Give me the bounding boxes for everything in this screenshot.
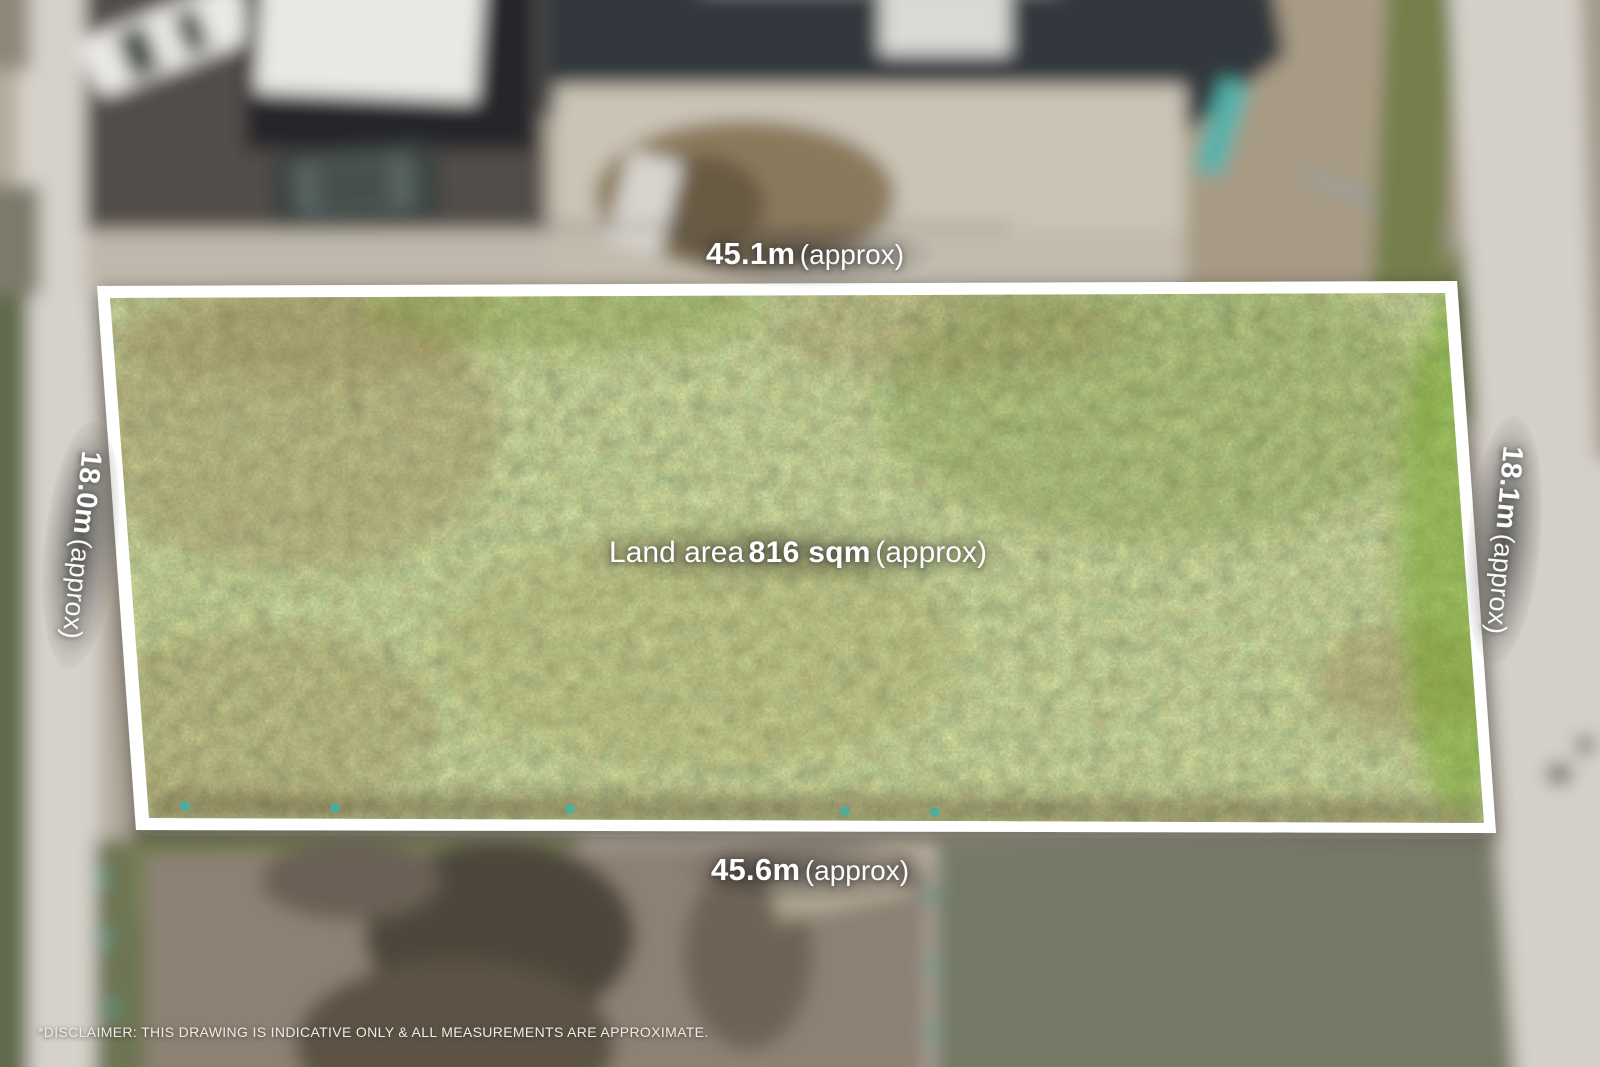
land-area-approx: (approx) xyxy=(875,536,987,569)
dirt-blob-4 xyxy=(260,840,440,920)
survey-mark-3 xyxy=(924,1028,936,1035)
right-boundary-measurement: 18.1m (approx) xyxy=(1479,445,1528,636)
top-measurement-value: 45.1m xyxy=(706,236,795,271)
bottom-boundary-measurement: 45.6m (approx) xyxy=(711,852,909,888)
road-debris xyxy=(1576,736,1594,754)
right-measurement-approx: (approx) xyxy=(1481,533,1520,636)
bottom-measurement-value: 45.6m xyxy=(711,852,800,887)
land-area-prefix: Land area xyxy=(609,536,744,569)
dark-suv xyxy=(268,142,445,230)
bottom-right-grass xyxy=(935,836,1516,1067)
left-boundary-measurement: 18.0m (approx) xyxy=(55,449,108,640)
land-area-label: Land area 816 sqm (approx) xyxy=(609,536,987,570)
left-measurement-value: 18.0m xyxy=(67,450,108,537)
left-measurement-approx: (approx) xyxy=(57,537,97,640)
road-debris-2 xyxy=(1548,765,1570,783)
land-area-diagram: 45.1m (approx) 45.6m (approx) 18.0m (app… xyxy=(0,0,1600,1067)
gravel-patch-left xyxy=(0,185,40,295)
land-area-value: 816 sqm xyxy=(749,536,871,569)
gravel-patch-top-left xyxy=(0,0,30,70)
survey-mark-2 xyxy=(924,963,936,970)
right-measurement-value: 18.1m xyxy=(1489,445,1528,531)
right-grass-strip xyxy=(1372,0,1456,300)
garage-white-roof xyxy=(255,0,485,102)
house-gable-white xyxy=(880,0,1010,55)
top-measurement-approx: (approx) xyxy=(800,239,904,270)
survey-mark-1 xyxy=(924,893,936,900)
left-grass-verge xyxy=(0,290,28,1067)
disclaimer-text: *DISCLAIMER: THIS DRAWING IS INDICATIVE … xyxy=(38,1024,709,1040)
top-boundary-measurement: 45.1m (approx) xyxy=(706,236,904,272)
bottom-measurement-approx: (approx) xyxy=(805,855,909,886)
rubble-strip xyxy=(85,230,550,292)
